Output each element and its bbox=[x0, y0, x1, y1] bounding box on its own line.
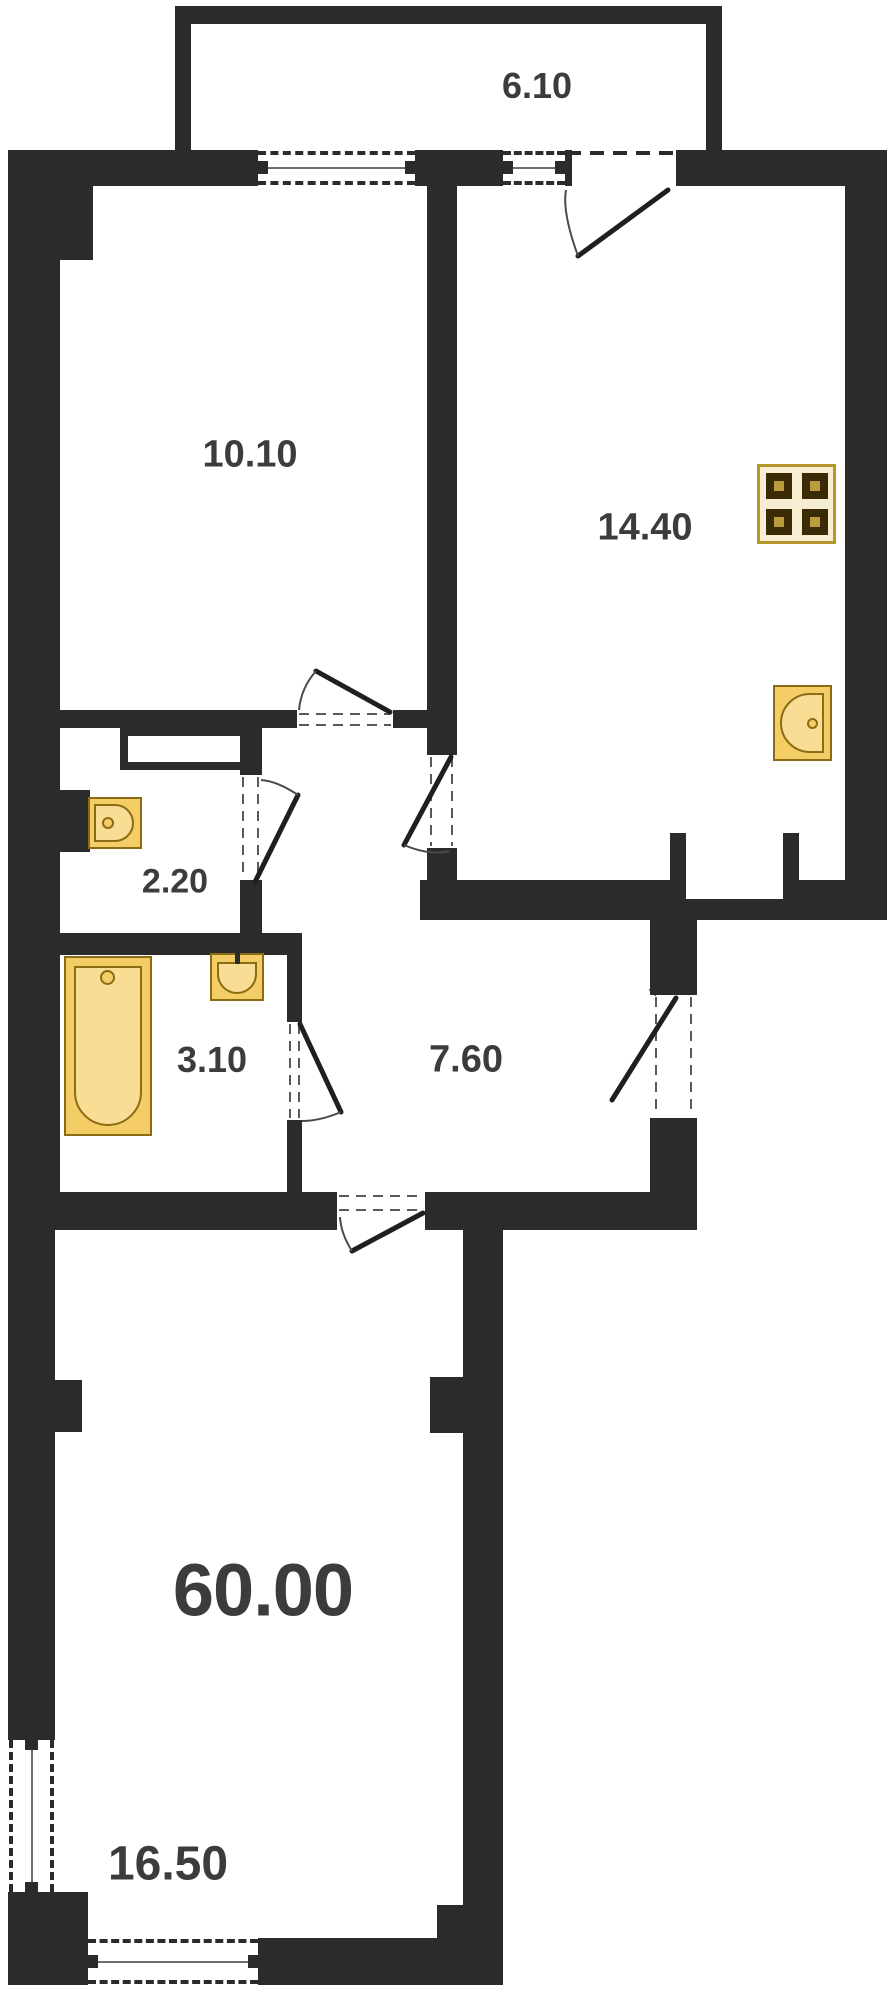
wall-entry-lower bbox=[650, 1118, 697, 1192]
wall-entry-upper bbox=[650, 920, 697, 995]
wall-bedroom-kitchen bbox=[427, 186, 457, 755]
bathroom-door bbox=[290, 1024, 341, 1121]
wall-bedroom-bottom-stub bbox=[393, 710, 427, 728]
balcony-wall-top bbox=[175, 6, 722, 24]
bathroom-sink-icon bbox=[210, 953, 264, 1001]
balcony-door-jamb bbox=[565, 150, 572, 186]
bathroom-sink-basin bbox=[217, 962, 257, 994]
bedroom-window bbox=[258, 150, 415, 186]
window-frame-nub bbox=[502, 161, 513, 174]
wall-living-right bbox=[463, 1230, 503, 1985]
window-outer-dash bbox=[9, 1740, 13, 1892]
wall-kitchen-bottom bbox=[420, 880, 887, 920]
kitchen-sink-drain bbox=[807, 718, 818, 729]
window-frame-nub bbox=[405, 161, 416, 174]
wall-toilet-hall-upper bbox=[240, 728, 262, 775]
balcony-area-label: 6.10 bbox=[502, 65, 572, 107]
stove-burner bbox=[802, 509, 828, 535]
duct-shaft-cavity bbox=[128, 736, 247, 762]
window-frame-nub bbox=[248, 1955, 259, 1968]
wall-left-step bbox=[60, 186, 93, 260]
toilet-sink-icon bbox=[88, 797, 142, 849]
balcony-wall-right bbox=[706, 6, 722, 152]
floor-plan: 6.10 10.10 14.40 2.20 3.10 7.60 60.00 16… bbox=[0, 0, 887, 2000]
living-room-area-label: 16.50 bbox=[108, 1837, 228, 1892]
window-frame-nub bbox=[257, 161, 268, 174]
bedroom-door bbox=[299, 671, 391, 725]
bathtub-drain bbox=[100, 970, 115, 985]
wall-bedroom-bottom bbox=[60, 710, 297, 728]
kitchen-area-label: 14.40 bbox=[597, 507, 692, 550]
toilet-sink-tap bbox=[102, 817, 114, 829]
window-glass-line bbox=[263, 167, 410, 169]
vent-niche-right bbox=[783, 833, 799, 899]
wall-bathroom-hall-upper bbox=[287, 955, 302, 1022]
window-frame-nub bbox=[555, 161, 566, 174]
toilet-sink-basin bbox=[94, 804, 134, 842]
window-glass-line bbox=[93, 1961, 253, 1963]
window-inner-dash bbox=[258, 181, 415, 185]
balcony-wall-left bbox=[175, 6, 191, 152]
kitchen-sink-icon bbox=[773, 685, 832, 761]
window-frame-nub bbox=[25, 1739, 38, 1750]
wall-living-left bbox=[8, 1230, 55, 1740]
vent-niche-left bbox=[670, 833, 686, 899]
living-room-door bbox=[339, 1196, 423, 1251]
stove-burner bbox=[802, 473, 828, 499]
window-frame-nub bbox=[87, 1955, 98, 1968]
window-glass-line bbox=[508, 167, 560, 169]
stove-burner bbox=[766, 509, 792, 535]
kitchen-door bbox=[404, 757, 452, 853]
living-window-bottom bbox=[88, 1938, 258, 1985]
entry-door bbox=[612, 984, 692, 1116]
stove-icon bbox=[757, 464, 836, 544]
wall-living-top-right bbox=[425, 1192, 697, 1230]
window-outer-dash bbox=[503, 151, 565, 155]
window-inner-dash bbox=[50, 1740, 54, 1892]
bathtub-icon bbox=[64, 956, 152, 1136]
window-glass-line bbox=[31, 1745, 33, 1887]
bedroom-area-label: 10.10 bbox=[202, 434, 297, 477]
toilet-door bbox=[243, 777, 298, 882]
stove-burner bbox=[766, 473, 792, 499]
bathroom-area-label: 3.10 bbox=[177, 1039, 247, 1081]
wall-living-right-step bbox=[437, 1905, 463, 1938]
vent-niche-cavity bbox=[686, 846, 783, 899]
toilet-area-label: 2.20 bbox=[142, 863, 208, 902]
window-inner-dash bbox=[88, 1980, 258, 1984]
pilaster-left bbox=[55, 1380, 82, 1432]
window-outer-dash bbox=[88, 1939, 258, 1943]
hallway-area-label: 7.60 bbox=[429, 1039, 503, 1082]
living-window-left bbox=[8, 1740, 55, 1892]
kitchen-window bbox=[503, 150, 565, 186]
balcony-door bbox=[565, 153, 674, 256]
total-area-label: 60.00 bbox=[173, 1548, 353, 1633]
wall-living-corner bbox=[8, 1892, 88, 1985]
wall-toilet-hall-lower bbox=[240, 880, 262, 940]
window-outer-dash bbox=[258, 151, 415, 155]
wall-toilet-bathroom bbox=[8, 933, 302, 955]
wall-left-upper bbox=[8, 150, 60, 1230]
bathtub-basin bbox=[74, 966, 142, 1126]
toilet-sink-stub bbox=[60, 790, 90, 852]
pilaster-right bbox=[430, 1377, 463, 1433]
wall-living-top-left bbox=[8, 1192, 337, 1230]
wall-kitchen-door-stub bbox=[427, 848, 457, 880]
wall-right-upper bbox=[845, 150, 887, 920]
bathroom-sink-tap bbox=[235, 953, 240, 964]
window-inner-dash bbox=[503, 181, 565, 185]
wall-top-middle bbox=[415, 150, 503, 186]
window-frame-nub bbox=[25, 1882, 38, 1893]
